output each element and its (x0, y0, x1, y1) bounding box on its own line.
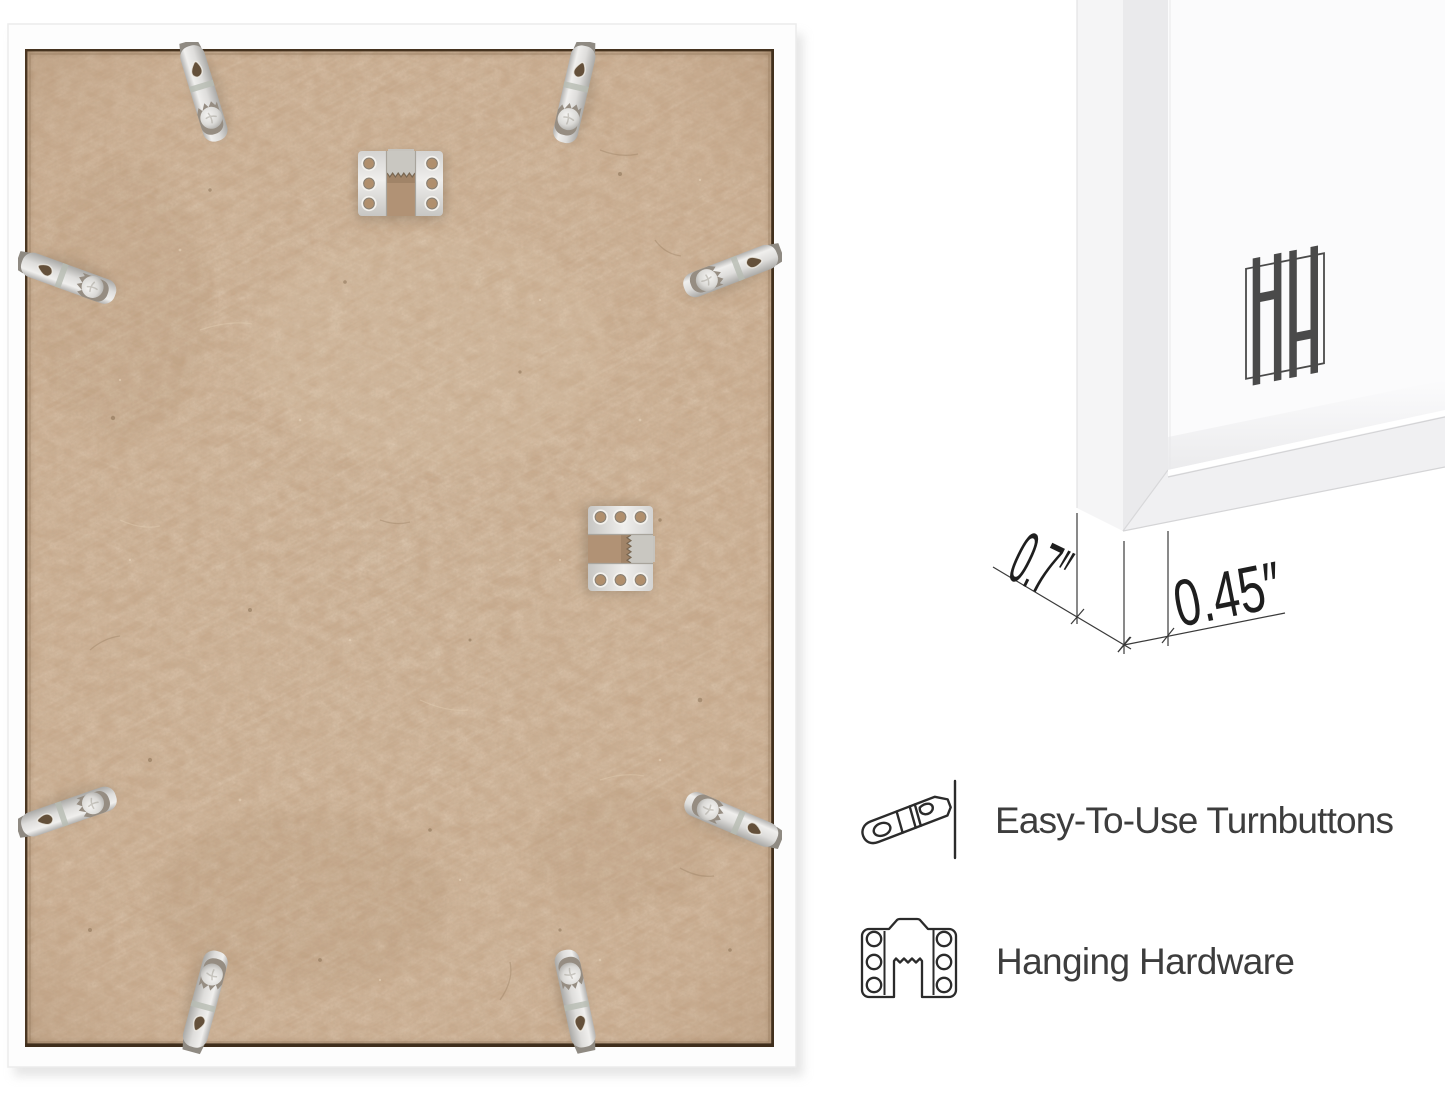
svg-text:Easy-To-Use Turnbuttons: Easy-To-Use Turnbuttons (995, 800, 1394, 841)
svg-text:Hanging Hardware: Hanging Hardware (996, 941, 1295, 982)
